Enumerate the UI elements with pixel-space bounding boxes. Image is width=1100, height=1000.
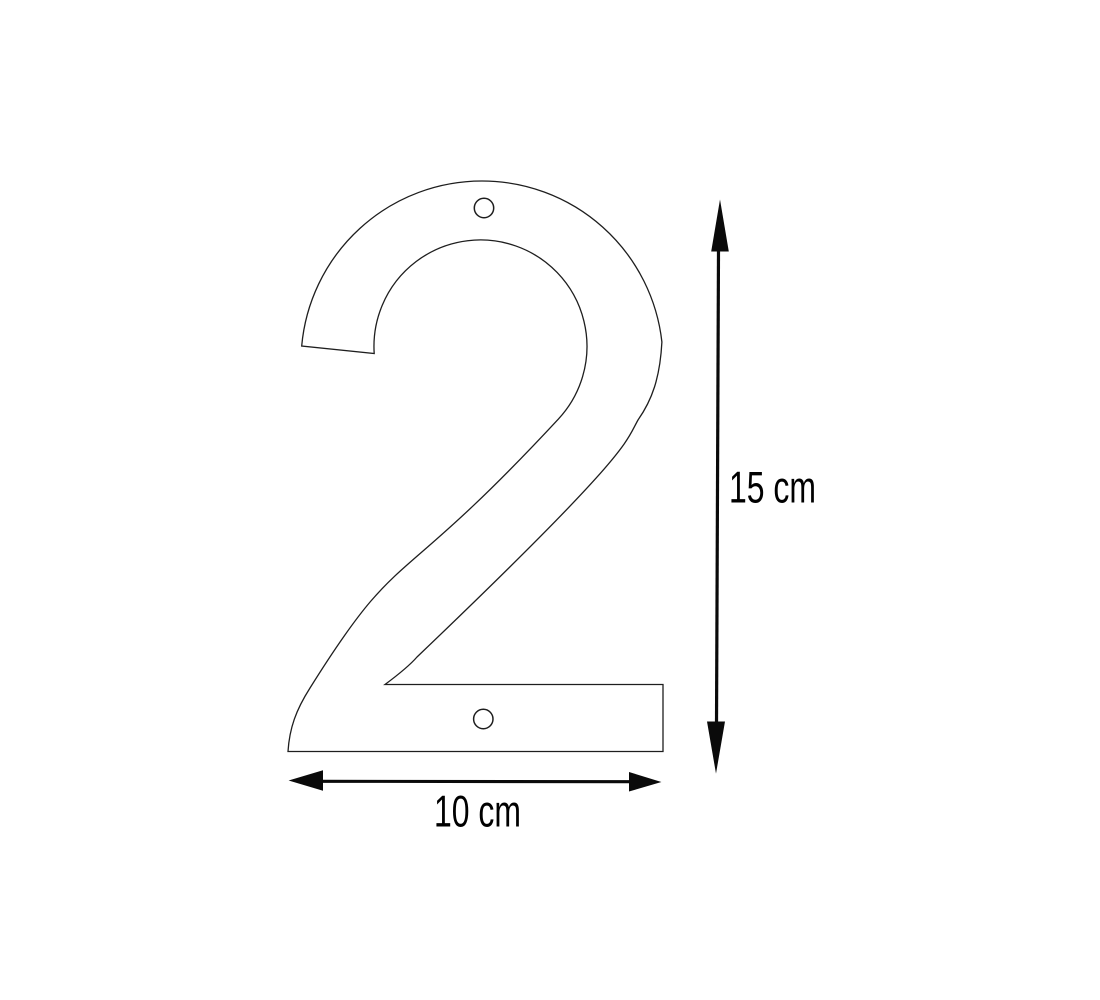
svg-text:15 cm: 15 cm: [729, 464, 816, 513]
svg-text:10 cm: 10 cm: [434, 788, 521, 837]
